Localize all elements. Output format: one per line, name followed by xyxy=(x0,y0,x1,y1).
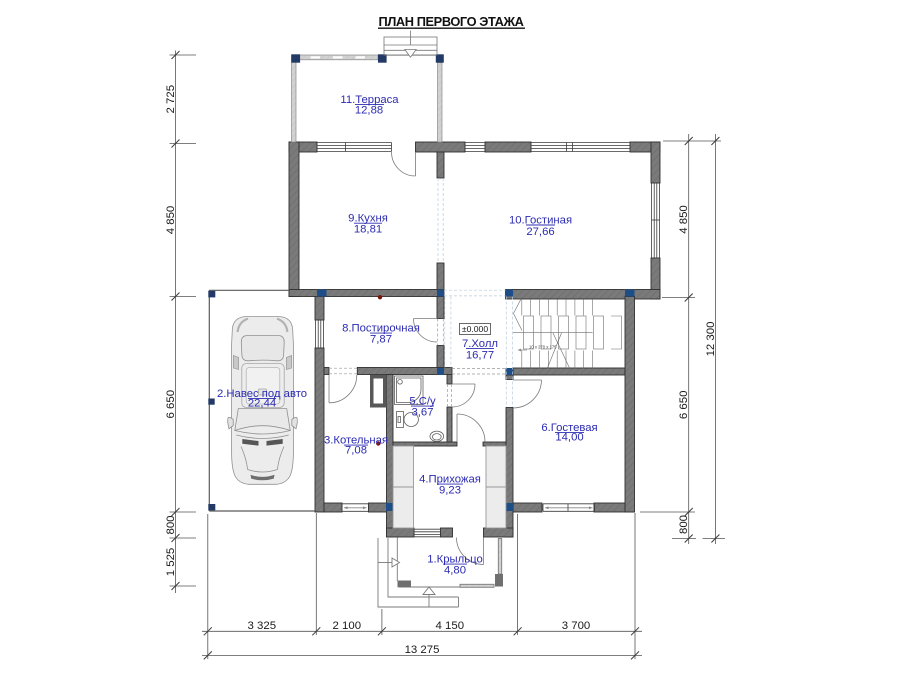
svg-text:4,80: 4,80 xyxy=(444,565,466,577)
svg-text:10.Гостиная: 10.Гостиная xyxy=(509,214,572,226)
svg-text:18,81: 18,81 xyxy=(354,224,382,236)
svg-text:22,44: 22,44 xyxy=(248,398,276,410)
svg-text:27,66: 27,66 xyxy=(526,226,554,238)
svg-text:6 650: 6 650 xyxy=(678,391,690,420)
svg-text:10 x 270 x 175: 10 x 270 x 175 xyxy=(529,345,557,350)
svg-text:13 275: 13 275 xyxy=(405,644,440,656)
svg-text:4 850: 4 850 xyxy=(678,205,690,234)
svg-text:ПЛАН ПЕРВОГО ЭТАЖА: ПЛАН ПЕРВОГО ЭТАЖА xyxy=(379,14,524,29)
svg-text:7,08: 7,08 xyxy=(345,445,367,457)
svg-text:4 150: 4 150 xyxy=(436,620,465,632)
svg-text:2 100: 2 100 xyxy=(333,620,362,632)
svg-text:3 325: 3 325 xyxy=(248,620,277,632)
svg-text:3 700: 3 700 xyxy=(562,620,591,632)
svg-text:4 850: 4 850 xyxy=(165,206,177,235)
svg-text:2 725: 2 725 xyxy=(165,85,177,114)
svg-text:800: 800 xyxy=(678,515,690,534)
svg-text:12 300: 12 300 xyxy=(705,322,717,357)
svg-text:3,67: 3,67 xyxy=(412,406,434,418)
svg-text:7,87: 7,87 xyxy=(370,334,392,346)
svg-text:12,88: 12,88 xyxy=(355,104,383,116)
svg-text:9,23: 9,23 xyxy=(439,485,461,497)
svg-text:16,77: 16,77 xyxy=(466,350,494,362)
svg-text:800: 800 xyxy=(165,515,177,534)
svg-text:1 525: 1 525 xyxy=(165,548,177,577)
svg-text:±0.000: ±0.000 xyxy=(462,324,488,334)
svg-text:6 650: 6 650 xyxy=(165,390,177,419)
svg-text:14,00: 14,00 xyxy=(555,432,583,444)
